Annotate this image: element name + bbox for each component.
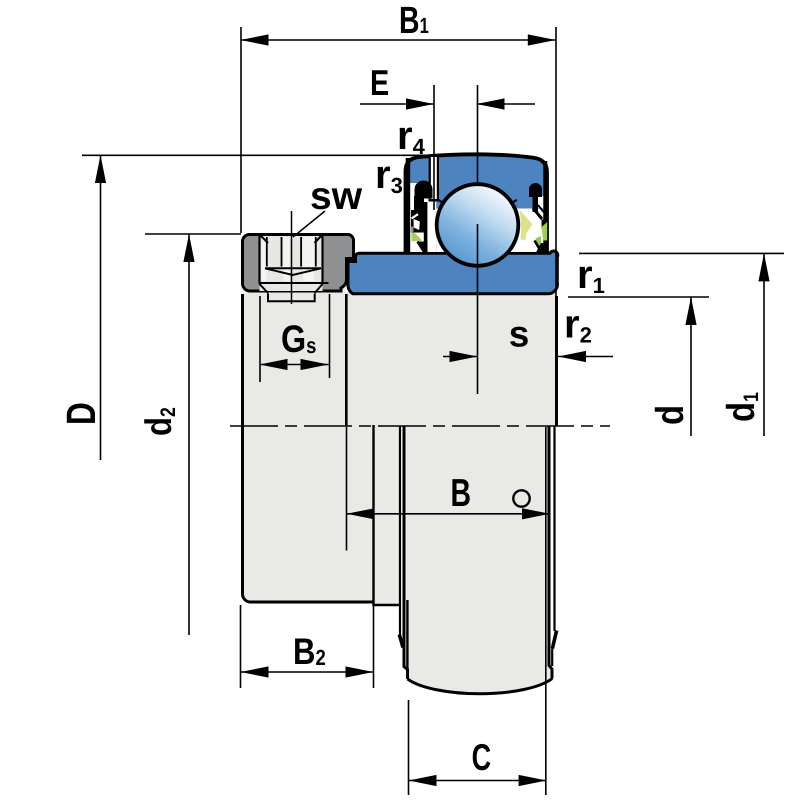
svg-text:s: s: [509, 314, 530, 355]
svg-text:E: E: [370, 62, 389, 103]
svg-text:d: d: [649, 405, 692, 425]
svg-text:sw: sw: [310, 175, 363, 218]
svg-text:B: B: [451, 472, 472, 515]
svg-text:C: C: [472, 736, 492, 778]
svg-text:D: D: [58, 402, 104, 425]
